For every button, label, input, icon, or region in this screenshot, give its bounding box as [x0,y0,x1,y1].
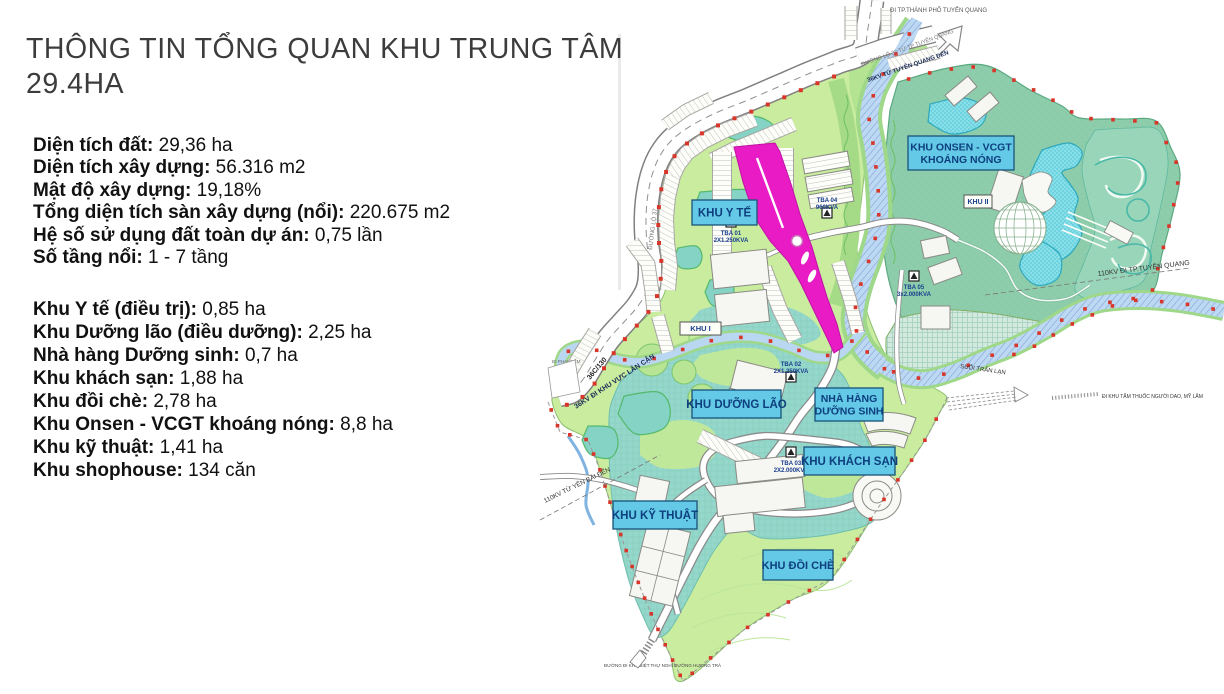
svg-text:TBA 03: TBA 03 [781,461,802,467]
svg-text:KHU Y TẾ: KHU Y TẾ [698,207,752,220]
svg-text:ĐI TP.THÀNH PHỐ TUYÊN QUANG: ĐI TP.THÀNH PHỐ TUYÊN QUANG [890,6,987,14]
svg-text:NHÀ HÀNG: NHÀ HÀNG [821,392,878,405]
svg-text:960KVA: 960KVA [816,205,839,211]
svg-text:DƯỠNG SINH: DƯỠNG SINH [814,405,883,418]
svg-text:2X1.250KVA: 2X1.250KVA [774,369,809,375]
svg-text:ĐƯỜNG ĐI KHU BIỆT THỰ NGHỈ DƯỠ: ĐƯỜNG ĐI KHU BIỆT THỰ NGHỈ DƯỠNG HƯƠNG T… [604,661,721,668]
svg-text:KHU ONSEN - VCGT: KHU ONSEN - VCGT [910,142,1012,154]
svg-text:ĐI KHU TẮM THUỐC NGƯỜI DAO, MỸ: ĐI KHU TẮM THUỐC NGƯỜI DAO, MỸ LÂM [1102,392,1203,400]
svg-text:KHU I: KHU I [690,324,710,333]
svg-text:TBA 02: TBA 02 [781,362,802,368]
svg-text:KHU II: KHU II [968,199,989,206]
svg-text:KHU DƯỠNG LÃO: KHU DƯỠNG LÃO [686,398,787,411]
svg-text:3x2.000KVA: 3x2.000KVA [897,292,932,298]
svg-text:KHU KHÁCH SẠN: KHU KHÁCH SẠN [801,455,898,468]
svg-text:KHU KỸ THUẬT: KHU KỸ THUẬT [612,509,698,522]
svg-text:KHU ĐỒI CHÈ: KHU ĐỒI CHÈ [762,559,835,572]
svg-text:KHOÁNG NÓNG: KHOÁNG NÓNG [920,153,1001,166]
svg-text:2X1.250KVA: 2X1.250KVA [714,238,749,244]
svg-text:TBA 01: TBA 01 [721,231,742,237]
svg-text:110KV TỪ YÊN BÁI ĐẾN: 110KV TỪ YÊN BÁI ĐẾN [541,464,611,505]
svg-text:TBA 05: TBA 05 [904,285,925,291]
svg-text:TBA 04: TBA 04 [817,198,838,204]
